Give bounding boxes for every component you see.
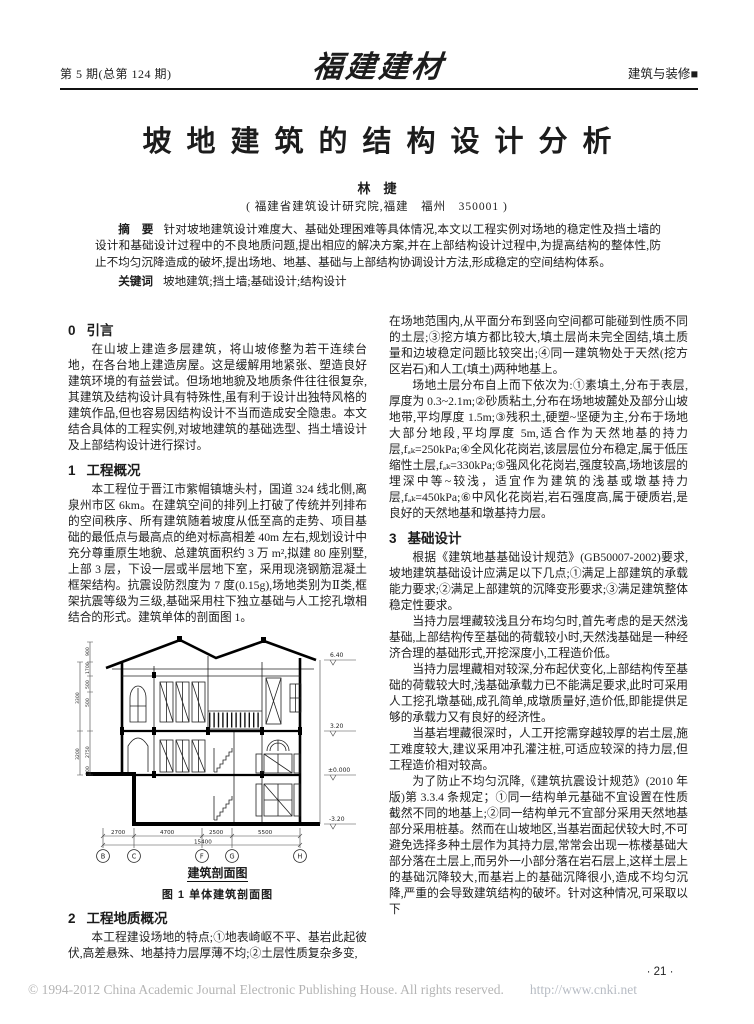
copyright-footer: © 1994-2012 China Academic Journal Elect… bbox=[28, 982, 728, 998]
paragraph: 当持力层埋藏相对较深,分布起伏变化,上部结构传至基础的荷载较大时,浅基础承载力已… bbox=[389, 662, 688, 726]
balcony-railing bbox=[206, 711, 264, 731]
journal-page: 第 5 期(总第 124 期) 福建建材 建筑与装修■ 坡地建筑的结构设计分析 … bbox=[0, 0, 754, 1024]
svg-text:500: 500 bbox=[85, 698, 91, 707]
svg-text:3.20: 3.20 bbox=[330, 723, 344, 730]
svg-text:3200: 3200 bbox=[75, 748, 81, 760]
svg-text:F: F bbox=[200, 853, 204, 861]
svg-text:15400: 15400 bbox=[194, 840, 212, 846]
svg-text:-3.20: -3.20 bbox=[329, 816, 345, 823]
stairs bbox=[214, 748, 232, 820]
svg-text:500: 500 bbox=[85, 680, 91, 689]
keywords-paragraph: 关键词坡地建筑;挡土墙;基础设计;结构设计 bbox=[95, 274, 661, 290]
figure-caption: 图 1 单体建筑剖面图 bbox=[68, 886, 367, 902]
right-column: 在场地范围内,从平面分布到竖向空间都可能碰到性质不同的土层;③挖方填方都比较大,… bbox=[389, 314, 688, 962]
grid-bubbles: B C F G H bbox=[97, 850, 307, 863]
svg-text:6.40: 6.40 bbox=[330, 652, 344, 659]
keywords-text: 坡地建筑;挡土墙;基础设计;结构设计 bbox=[163, 275, 347, 288]
svg-text:500: 500 bbox=[85, 766, 91, 775]
paragraph: 当基岩埋藏很深时，人工开挖需穿越较厚的岩土层,施工难度较大,建议采用冲孔灌注桩,… bbox=[389, 726, 688, 774]
roof bbox=[106, 636, 316, 669]
paragraph: 本工程建设场地的特点;①地表崎岖不平、基岩此起彼伏,高差悬殊、地基持力层厚薄不均… bbox=[68, 930, 367, 962]
section-heading-2: 2工程地质概况 bbox=[68, 907, 367, 927]
svg-text:900: 900 bbox=[85, 647, 91, 656]
figure-inner-caption: 建筑剖面图 bbox=[187, 866, 247, 882]
svg-text:4700: 4700 bbox=[160, 830, 175, 836]
svg-text:G: G bbox=[230, 853, 235, 861]
svg-text:5500: 5500 bbox=[258, 830, 273, 836]
svg-text:2750: 2750 bbox=[85, 746, 91, 758]
author-name: 林 捷 bbox=[0, 178, 754, 197]
section-label: 建筑与装修■ bbox=[628, 63, 698, 82]
left-column: 0引言 在山坡上建造多层建筑，将山坡修整为若干连续台地，在各台地上建造房屋。这是… bbox=[68, 314, 367, 962]
article-body: 0引言 在山坡上建造多层建筑，将山坡修整为若干连续台地，在各台地上建造房屋。这是… bbox=[68, 314, 688, 962]
author-affiliation: ( 福建省建筑设计研究院,福建 福州 350001 ) bbox=[0, 198, 754, 214]
paragraph: 当持力层埋藏较浅且分布均匀时,首先考虑的是天然浅基础,上部结构传至基础的荷载较小… bbox=[389, 614, 688, 662]
building-section-drawing: 900 1700 500 500 2750 500 3300 3200 bbox=[68, 632, 367, 864]
paragraph: 在场地范围内,从平面分布到竖向空间都可能碰到性质不同的土层;③挖方填方都比较大,… bbox=[389, 314, 688, 378]
keywords-label: 关键词 bbox=[118, 275, 153, 288]
svg-text:±0.000: ±0.000 bbox=[328, 767, 350, 774]
article-title: 坡地建筑的结构设计分析 bbox=[0, 118, 754, 160]
svg-text:B: B bbox=[101, 853, 106, 861]
basement-windows bbox=[256, 784, 300, 816]
paragraph: 为了防止不均匀沉降,《建筑抗震设计规范》(2010 年版)第 3.3.4 条规定… bbox=[389, 774, 688, 918]
paragraph: 场地土层分布自上而下依次为:①素填土,分布于表层,厚度为 0.3~2.1m;②砂… bbox=[389, 378, 688, 522]
section-square-marker: ■ bbox=[690, 67, 698, 81]
left-dimensions: 900 1700 500 500 2750 500 3300 3200 bbox=[75, 642, 93, 775]
copyright-text: © 1994-2012 China Academic Journal Elect… bbox=[28, 982, 504, 997]
section-heading-3: 3基础设计 bbox=[389, 527, 688, 547]
page-header: 第 5 期(总第 124 期) 福建建材 建筑与装修■ bbox=[60, 50, 698, 86]
paragraph: 根据《建筑地基基础设计规范》(GB50007-2002)要求,坡地建筑基础设计应… bbox=[389, 550, 688, 614]
section-heading-1: 1工程概况 bbox=[68, 459, 367, 479]
svg-text:2700: 2700 bbox=[111, 830, 126, 836]
svg-text:3300: 3300 bbox=[75, 692, 81, 704]
elevation-markers: 6.40 3.20 ±0.000 -3.20 bbox=[320, 652, 356, 829]
paragraph: 在山坡上建造多层建筑，将山坡修整为若干连续台地，在各台地上建造房屋。这是缓解用地… bbox=[68, 342, 367, 454]
abstract-text: 针对坡地建筑设计难度大、基础处理困难等具体情况,本文以工程实例对场地的稳定性及挡… bbox=[95, 223, 661, 269]
cnki-url: http://www.cnki.net bbox=[530, 982, 637, 997]
section-heading-0: 0引言 bbox=[68, 319, 367, 339]
abstract-paragraph: 摘 要针对坡地建筑设计难度大、基础处理困难等具体情况,本文以工程实例对场地的稳定… bbox=[95, 222, 661, 271]
bottom-dimensions: 2700 4700 2500 5500 15400 bbox=[101, 828, 302, 848]
figure-1: 900 1700 500 500 2750 500 3300 3200 bbox=[68, 632, 367, 902]
page-number: · 21 · bbox=[620, 966, 700, 978]
svg-text:C: C bbox=[132, 853, 137, 861]
svg-text:1700: 1700 bbox=[85, 662, 91, 674]
abstract-label: 摘 要 bbox=[118, 223, 153, 236]
paragraph: 本工程位于晋江市紫帽镇塘头村，国道 324 线北侧,离泉州市区 6km。在建筑空… bbox=[68, 482, 367, 626]
header-divider bbox=[60, 88, 698, 90]
journal-logo: 福建建材 bbox=[58, 42, 701, 86]
svg-text:H: H bbox=[297, 853, 302, 861]
svg-text:2500: 2500 bbox=[209, 830, 224, 836]
abstract-block: 摘 要针对坡地建筑设计难度大、基础处理困难等具体情况,本文以工程实例对场地的稳定… bbox=[95, 222, 661, 291]
second-floor-windows bbox=[130, 678, 301, 724]
